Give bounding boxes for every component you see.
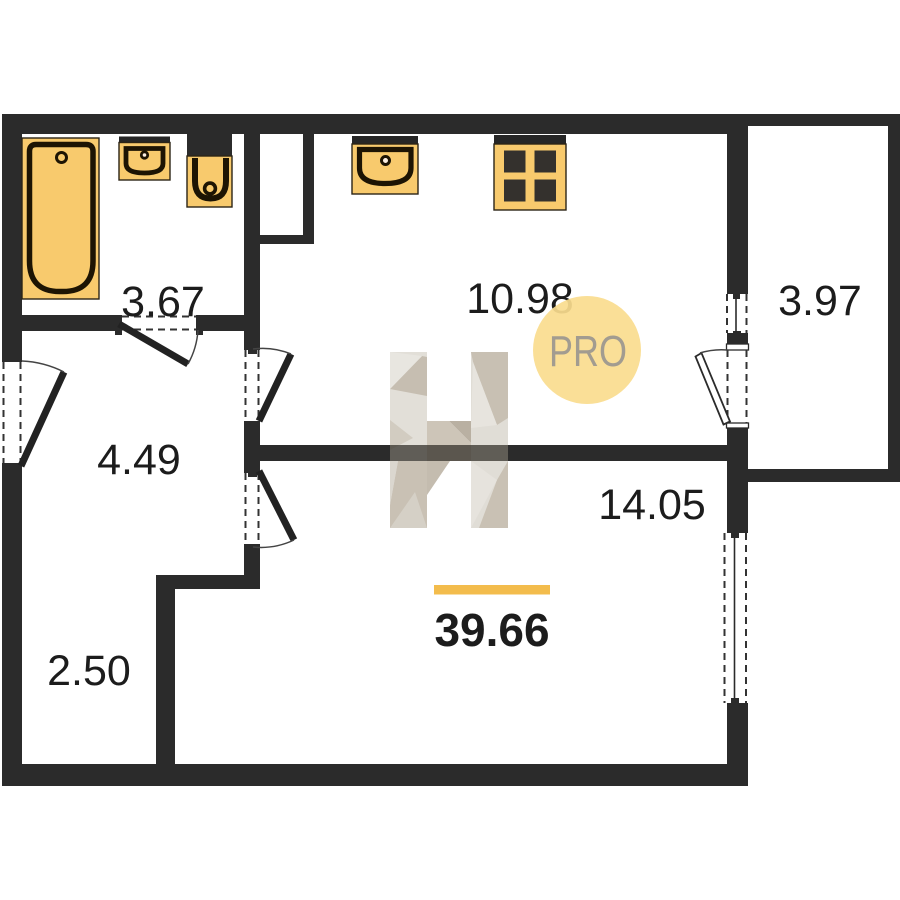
svg-text:2.50: 2.50 xyxy=(47,647,131,695)
svg-text:4.49: 4.49 xyxy=(97,436,181,484)
svg-text:39.66: 39.66 xyxy=(434,604,549,656)
svg-text:3.67: 3.67 xyxy=(121,278,205,326)
svg-text:PRO: PRO xyxy=(549,327,627,376)
svg-text:14.05: 14.05 xyxy=(598,481,706,529)
svg-text:3.97: 3.97 xyxy=(778,277,862,325)
